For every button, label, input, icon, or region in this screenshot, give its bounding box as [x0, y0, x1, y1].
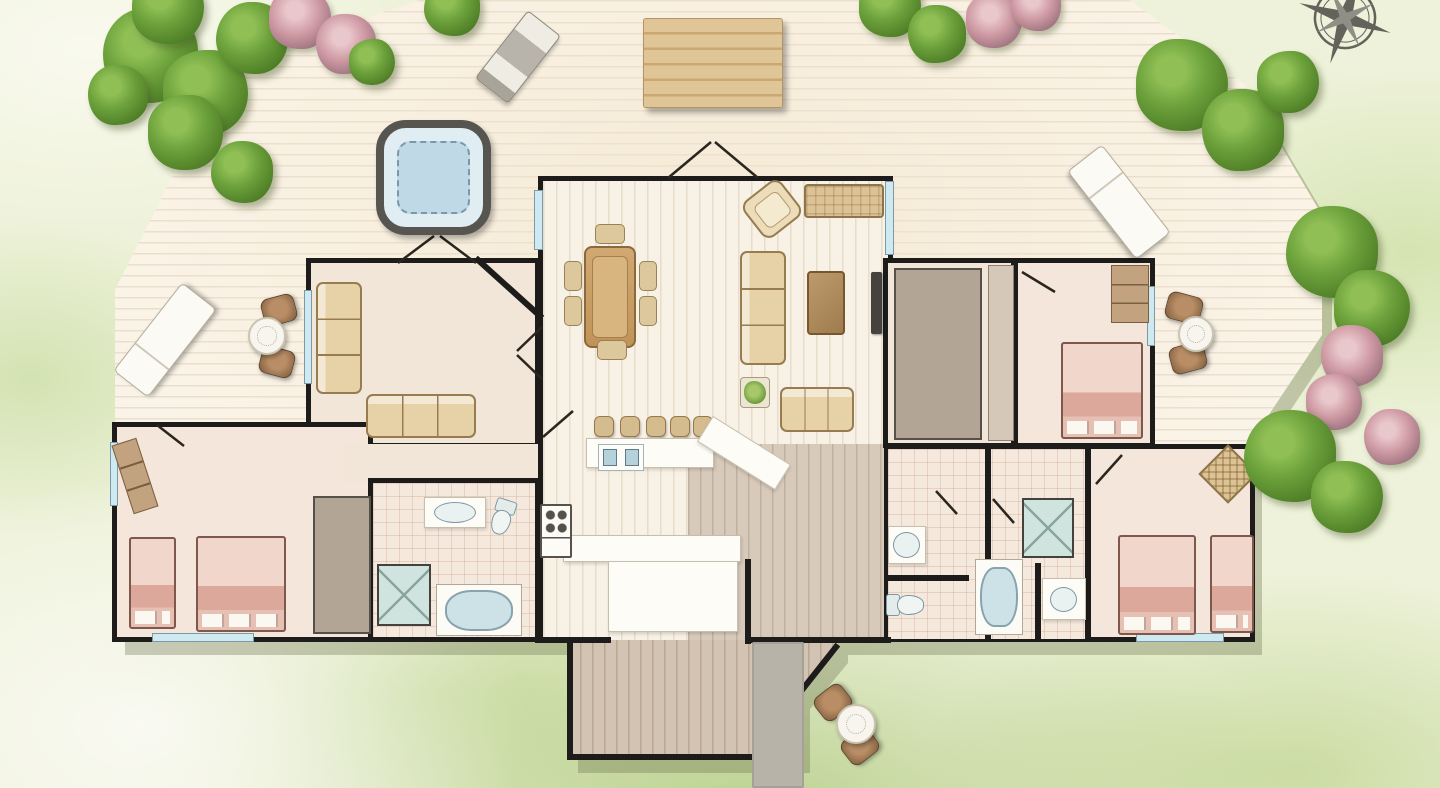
floorplan-scene — [0, 0, 1440, 788]
landscaping-layer — [0, 0, 1440, 788]
tree — [908, 5, 966, 63]
tree — [211, 141, 273, 203]
tree — [349, 39, 395, 85]
tree — [424, 0, 480, 36]
flower-bush — [1364, 409, 1420, 465]
tree — [1311, 461, 1383, 533]
compass-rose-icon — [1295, 0, 1395, 68]
tree — [88, 65, 148, 125]
tree — [148, 95, 223, 170]
